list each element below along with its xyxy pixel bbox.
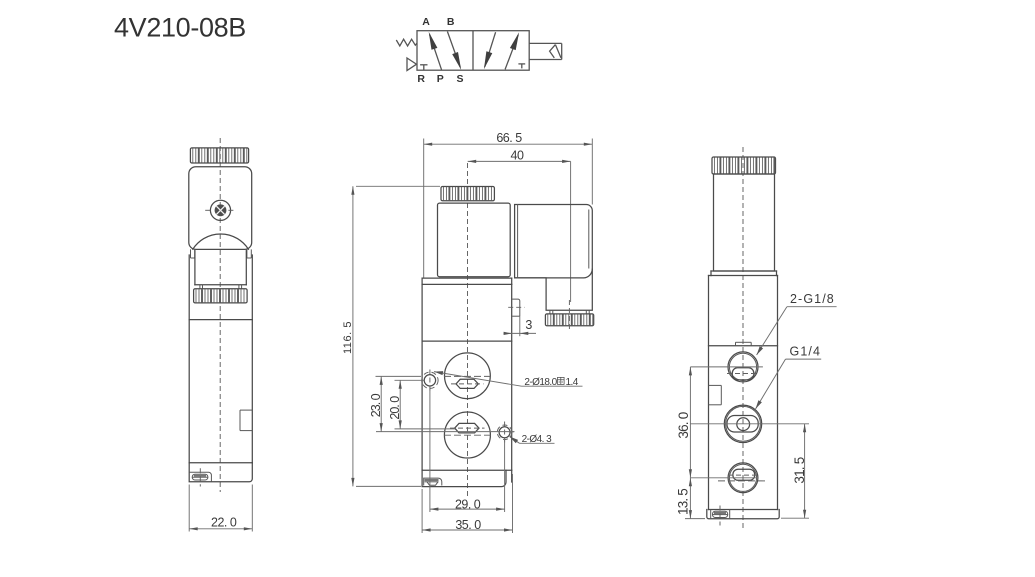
svg-text:2-Ø4. 3: 2-Ø4. 3 — [522, 434, 552, 445]
svg-text:P: P — [437, 73, 444, 85]
svg-text:20. 0: 20. 0 — [388, 396, 402, 420]
svg-text:23. 0: 23. 0 — [369, 393, 383, 417]
svg-text:22. 0: 22. 0 — [211, 515, 237, 529]
svg-text:35. 0: 35. 0 — [455, 518, 481, 532]
svg-text:40: 40 — [511, 149, 524, 163]
svg-text:31. 5: 31. 5 — [792, 457, 807, 483]
svg-text:2-G1/8: 2-G1/8 — [790, 292, 835, 306]
svg-text:66. 5: 66. 5 — [496, 131, 522, 145]
svg-text:4V210-08B: 4V210-08B — [114, 12, 246, 42]
svg-text:2-Ø18.0: 2-Ø18.0 — [524, 377, 557, 388]
svg-text:B: B — [447, 16, 455, 28]
svg-text:R: R — [417, 73, 425, 85]
svg-text:3: 3 — [525, 318, 532, 332]
svg-text:G1/4: G1/4 — [790, 345, 822, 359]
svg-text:1.4: 1.4 — [566, 377, 579, 388]
svg-text:S: S — [456, 73, 463, 85]
svg-text:13. 5: 13. 5 — [676, 489, 691, 515]
svg-text:36. 0: 36. 0 — [676, 412, 691, 438]
svg-text:29. 0: 29. 0 — [455, 498, 481, 512]
svg-text:116. 5: 116. 5 — [342, 321, 354, 354]
svg-text:A: A — [422, 16, 430, 28]
